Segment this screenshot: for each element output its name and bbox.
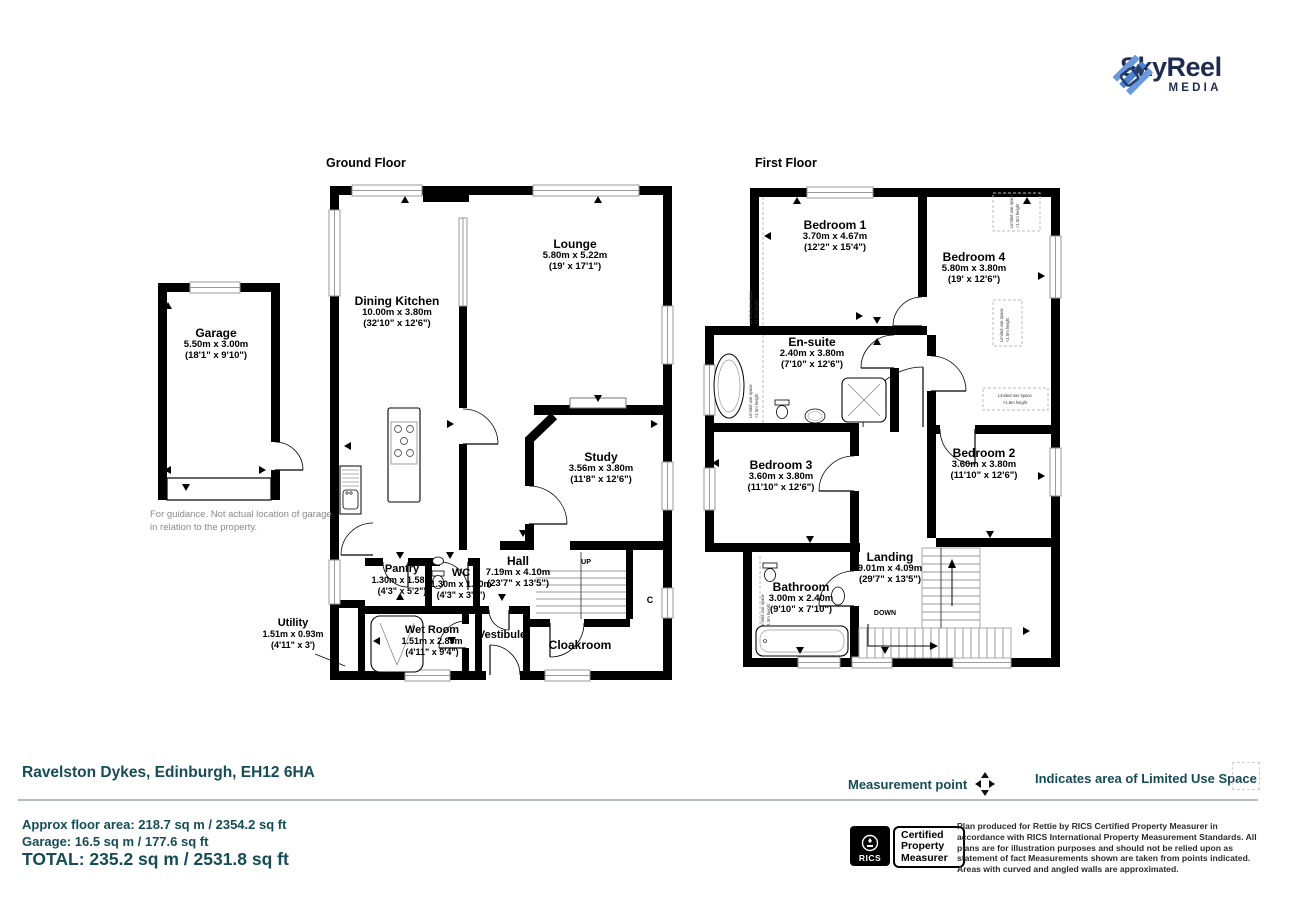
limited-use-label: Indicates area of Limited Use Space bbox=[1035, 771, 1257, 786]
room-label-wet-room: Wet Room 1.51m x 2.85m (4'11" x 9'4") bbox=[401, 625, 462, 658]
stairs-down-label: DOWN bbox=[874, 610, 896, 617]
approx-floor-area: Approx floor area: 218.7 sq m / 2354.2 s… bbox=[22, 817, 286, 832]
room-label-hall: Hall 7.19m x 4.10m (23'7" x 13'5") bbox=[486, 556, 550, 589]
measurement-point-icon bbox=[973, 770, 997, 798]
plan-disclaimer: Plan produced for Rettie by RICS Certifi… bbox=[957, 821, 1259, 875]
measurement-point-label: Measurement point bbox=[848, 777, 967, 792]
limited-use-legend: Indicates area of Limited Use Space bbox=[1035, 770, 1257, 788]
room-label-vestibule: Vestibule bbox=[478, 630, 526, 641]
kitchen-island bbox=[388, 408, 420, 502]
ground-floor-title: Ground Floor bbox=[326, 156, 406, 170]
kitchen-sink-unit bbox=[340, 466, 361, 514]
floorplan-page: SkyReel MEDIA Ground Floor First Floor bbox=[0, 0, 1295, 898]
svg-text:Limited use space: Limited use space bbox=[748, 384, 753, 418]
room-label-utility: Utility 1.51m x 0.93m (4'11" x 3') bbox=[262, 618, 323, 651]
room-label-study: Study 3.56m x 3.80m (11'8" x 12'6") bbox=[569, 452, 633, 485]
study-chamfer-wall bbox=[528, 416, 554, 441]
rics-logo: RICS bbox=[850, 826, 890, 866]
svg-text:<1.5m height: <1.5m height bbox=[1003, 400, 1028, 405]
first-floor-plan: Limited use space <1.5m height Limited u… bbox=[700, 176, 1070, 676]
garage-window bbox=[190, 282, 240, 293]
room-label-bathroom: Bathroom 3.00m x 2.40m (9'10" x 7'10") bbox=[769, 582, 833, 615]
stairs-up-label: UP bbox=[581, 559, 591, 566]
svg-text:Limited use space: Limited use space bbox=[760, 594, 765, 628]
front-door bbox=[486, 645, 520, 682]
svg-text:Limited use space: Limited use space bbox=[1009, 194, 1014, 228]
svg-text:<1.5m height: <1.5m height bbox=[754, 393, 759, 418]
rics-certification-badge: RICS Certified Property Measurer bbox=[850, 826, 965, 868]
svg-text:Limited use space: Limited use space bbox=[748, 290, 753, 324]
ground-floor-plan bbox=[240, 176, 687, 688]
room-label-wc: WC 1.30m x 1.10m (4'3" x 3'7") bbox=[430, 568, 491, 601]
room-label-bedroom-1: Bedroom 1 3.70m x 4.67m (12'2" x 15'4") bbox=[803, 220, 867, 253]
room-label-bedroom-4: Bedroom 4 5.80m x 3.80m (19' x 12'6") bbox=[942, 252, 1006, 285]
svg-text:Limited use space: Limited use space bbox=[998, 393, 1032, 398]
room-label-bedroom-2: Bedroom 2 3.60m x 3.80m (11'10" x 12'6") bbox=[951, 448, 1018, 481]
room-label-dining-kitchen: Dining Kitchen 10.00m x 3.80m (32'10" x … bbox=[355, 296, 440, 329]
measurement-point-legend: Measurement point bbox=[848, 770, 997, 798]
svg-text:<1.5m height: <1.5m height bbox=[1005, 317, 1010, 342]
footer-divider bbox=[18, 799, 1258, 801]
room-label-bedroom-3: Bedroom 3 3.60m x 3.80m (11'10" x 12'6") bbox=[748, 460, 815, 493]
room-label-en-suite: En-suite 2.40m x 3.80m (7'10" x 12'6") bbox=[780, 337, 844, 370]
rics-lion-icon bbox=[860, 833, 880, 853]
cupboard-label: C bbox=[647, 595, 654, 605]
limited-use-swatch bbox=[1232, 762, 1260, 790]
room-label-landing: Landing 9.01m x 4.09m (29'7" x 13'5") bbox=[858, 552, 922, 585]
svg-text:Limited use space: Limited use space bbox=[999, 308, 1004, 342]
garage-area: Garage: 16.5 sq m / 177.6 sq ft bbox=[22, 834, 208, 849]
first-floor-title: First Floor bbox=[755, 156, 817, 170]
property-address: Ravelston Dykes, Edinburgh, EH12 6HA bbox=[22, 764, 315, 782]
video-camera-icon bbox=[1112, 54, 1154, 96]
room-label-lounge: Lounge 5.80m x 5.22m (19' x 17'1") bbox=[543, 239, 607, 272]
total-area: TOTAL: 235.2 sq m / 2531.8 sq ft bbox=[22, 849, 289, 870]
room-label-cloakroom: Cloakroom bbox=[549, 640, 612, 651]
garage-note: For guidance. Not actual location of gar… bbox=[150, 508, 332, 534]
rics-org-label: RICS bbox=[859, 853, 881, 863]
room-label-garage: Garage 5.50m x 3.00m (18'1" x 9'10") bbox=[184, 328, 248, 361]
rics-badge-text: Certified Property Measurer bbox=[893, 826, 965, 868]
first-walls bbox=[705, 188, 1060, 667]
room-label-pantry: Pantry 1.30m x 1.58m (4'3" x 5'2") bbox=[371, 564, 432, 597]
svg-text:<1.5m height: <1.5m height bbox=[1015, 203, 1020, 228]
svg-text:<1.5m height: <1.5m height bbox=[754, 299, 759, 324]
skyreel-logo: SkyReel MEDIA bbox=[1112, 54, 1222, 94]
